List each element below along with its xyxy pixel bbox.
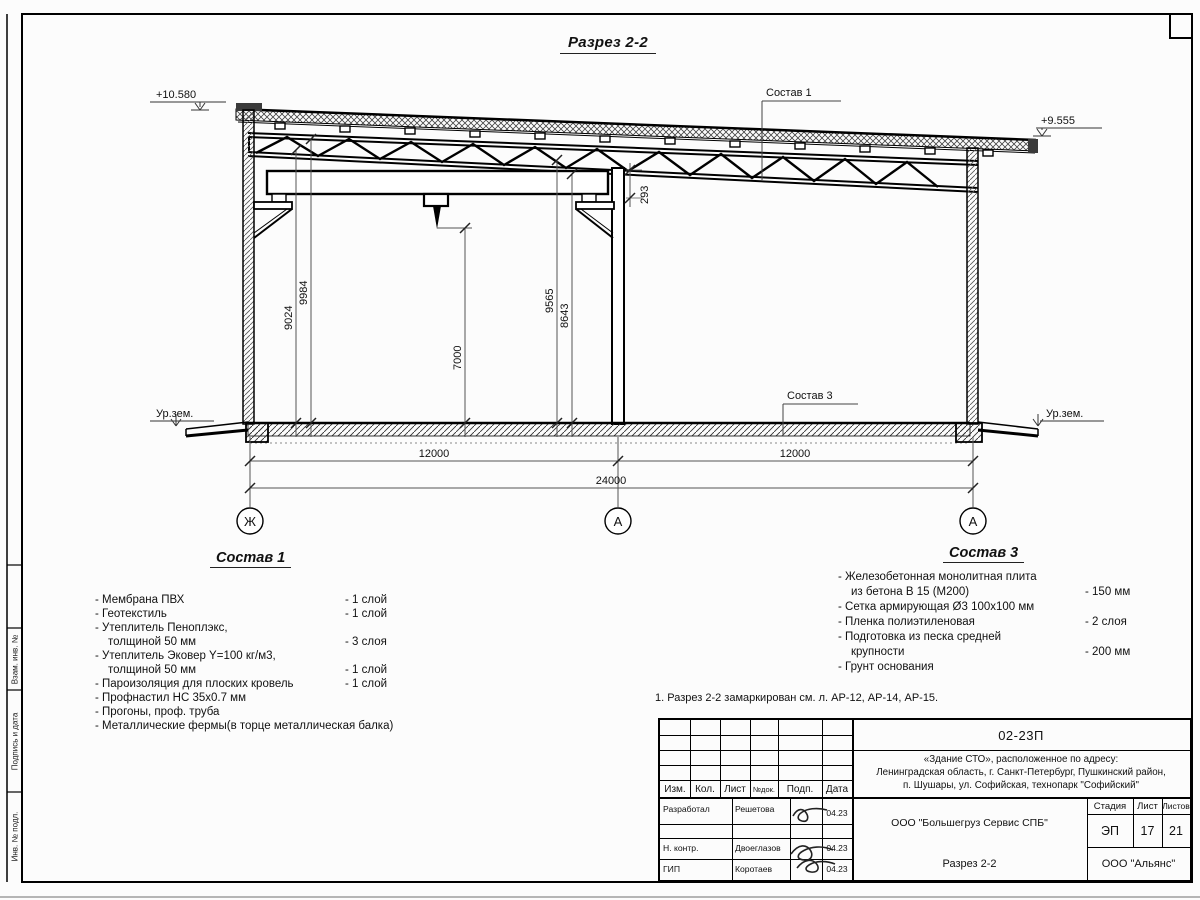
stamp-doc-number: 02-23П <box>852 720 1190 750</box>
leader-sostav3-label: Состав 3 <box>787 390 833 402</box>
stamp-org: ООО "Альянс" <box>1087 847 1190 880</box>
stamp-col-izm: Изм. <box>660 781 690 797</box>
right-wall <box>967 148 978 424</box>
stamp-gridline <box>660 765 852 766</box>
dim-8643: 8643 <box>559 304 571 328</box>
page-title: Разрез 2-2 <box>560 34 656 54</box>
stamp-col-kol: Кол. <box>690 781 720 797</box>
title-block: Изм. Кол. Лист №док. Подп. Дата Разработ… <box>658 718 1192 882</box>
stamp-sheets-label: Листов <box>1162 798 1190 814</box>
legend1-line: - Прогоны, проф. труба <box>92 706 492 720</box>
stamp-gridline <box>660 750 852 751</box>
dim-9984: 9984 <box>298 281 310 305</box>
dim-span-right: 12000 <box>780 448 811 460</box>
legend3-line: - Пленка полиэтиленовая- 2 слоя <box>835 616 1180 631</box>
legend3-heading: Состав 3 <box>943 545 1024 563</box>
dim-span-left: 12000 <box>419 448 450 460</box>
stamp-name: Двоеглазов <box>735 841 789 855</box>
elevation-left-label: +10.580 <box>156 89 196 101</box>
leader-sostav1-label: Состав 1 <box>766 87 812 99</box>
stamp-object-line1: «Здание СТО», расположенное по адресу: <box>854 753 1188 766</box>
stamp-stage-label: Стадия <box>1087 798 1133 814</box>
left-wall <box>243 110 254 424</box>
ground-left-label: Ур.зем. <box>156 408 193 420</box>
stamp-stage-value: ЭП <box>1087 814 1133 847</box>
dim-total: 24000 <box>596 475 627 487</box>
dim-293: 293 <box>639 186 651 204</box>
stamp-col-podp: Подп. <box>778 781 822 797</box>
legend1-line: толщиной 50 мм- 3 слоя <box>92 636 492 650</box>
stamp-col-list: Лист <box>720 781 750 797</box>
elevation-right-label: +9.555 <box>1041 115 1075 127</box>
legend3-line: из бетона В 15 (М200)- 150 мм <box>835 586 1180 601</box>
strip-cell-vzam: Взам. инв. № <box>7 628 22 690</box>
legend1-line: - Утеплитель Эковер Y=100 кг/м3, <box>92 650 492 664</box>
axis-left-label: Ж <box>244 514 256 529</box>
strip-cell-podpis: Подпись и дата <box>7 690 22 792</box>
legend1-line: толщиной 50 мм- 1 слой <box>92 664 492 678</box>
elevation-mark-left <box>150 102 226 110</box>
stamp-object-line3: п. Шушары, ул. Софийская, технопарк "Соф… <box>854 779 1188 792</box>
legend1-heading: Состав 1 <box>210 550 291 568</box>
strip-cell-inv: Инв. № подл. <box>7 792 22 881</box>
stamp-object-line2: Ленинградская область, г. Санкт-Петербур… <box>854 766 1188 779</box>
stamp-name: Коротаев <box>735 862 789 876</box>
legend3-line: - Железобетонная монолитная плита <box>835 571 1180 586</box>
left-apron <box>186 422 248 436</box>
stamp-sheet-label: Лист <box>1133 798 1162 814</box>
signatures <box>785 796 845 881</box>
stamp-gridline <box>852 750 1190 751</box>
legend3-line: - Сетка армирующая Ø3 100х100 мм <box>835 601 1180 616</box>
stamp-sheet-title: Разрез 2-2 <box>852 847 1087 880</box>
floor-slab <box>186 422 1038 443</box>
dim-7000: 7000 <box>452 346 464 370</box>
stamp-name: Решетова <box>735 802 789 816</box>
stamp-gridline <box>660 735 852 736</box>
stamp-object: «Здание СТО», расположенное по адресу: Л… <box>854 753 1188 797</box>
stamp-sheet-value: 17 <box>1133 814 1162 847</box>
legend1-line: - Утеплитель Пеноплэкс, <box>92 622 492 636</box>
crane-trolley <box>424 194 448 206</box>
legend3-line: крупности- 200 мм <box>835 646 1180 661</box>
legend3-line: - Подготовка из песка средней <box>835 631 1180 646</box>
legend-sostav3: Состав 3 - Железобетонная монолитная пли… <box>835 543 1180 693</box>
legend1-line: - Пароизоляция для плоских кровель- 1 сл… <box>92 678 492 692</box>
stamp-col-data: Дата <box>822 781 852 797</box>
stamp-role: Разработал <box>663 802 731 816</box>
stamp-company: ООО "Большегруз Сервис СПБ" <box>852 798 1087 847</box>
crane-hook <box>433 206 441 229</box>
legend1-line: - Металлические фермы(в торце металличес… <box>92 720 492 734</box>
dim-9024: 9024 <box>283 306 295 330</box>
stamp-role: ГИП <box>663 862 731 876</box>
stamp-role: Н. контр. <box>663 841 731 855</box>
bottom-dimensions <box>245 437 978 507</box>
ground-right-label: Ур.зем. <box>1046 408 1083 420</box>
stamp-col-ndok: №док. <box>750 781 778 797</box>
axis-mid-label: А <box>614 514 623 529</box>
axis-bubbles <box>237 508 986 534</box>
legend1-line: - Профнастил НС 35х0.7 мм <box>92 692 492 706</box>
dim-9565: 9565 <box>544 289 556 313</box>
legend1-line: - Мембрана ПВХ- 1 слой <box>92 594 492 608</box>
legend1-line: - Геотекстиль- 1 слой <box>92 608 492 622</box>
elevation-mark-right <box>1033 128 1102 136</box>
drawing-note: 1. Разрез 2-2 замаркирован см. л. АР-12,… <box>655 692 938 704</box>
legend-sostav1: Состав 1 - Мембрана ПВХ- 1 слой - Геотек… <box>92 548 492 748</box>
axis-right-label: А <box>969 514 978 529</box>
stamp-sheets-value: 21 <box>1162 814 1190 847</box>
right-apron <box>978 422 1038 436</box>
stamp-gridline <box>732 798 733 880</box>
legend3-line: - Грунт основания <box>835 661 1180 676</box>
